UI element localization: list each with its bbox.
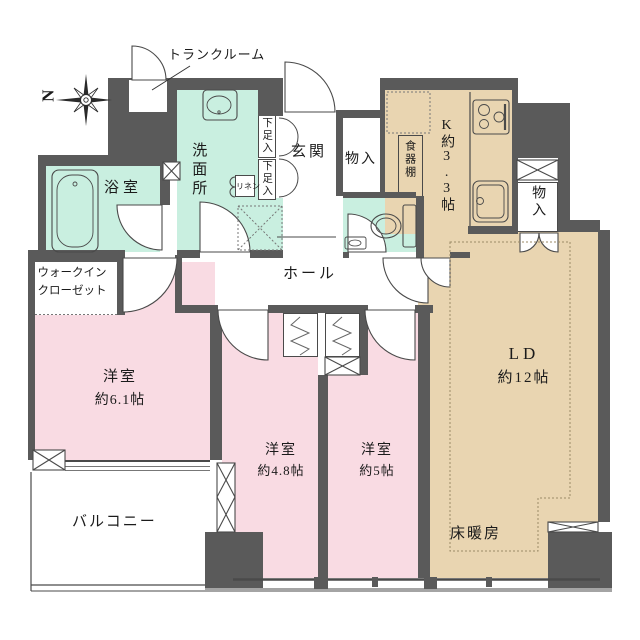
hall-label: ホール <box>283 266 337 283</box>
washroom-label: 洗面所 <box>189 142 206 199</box>
entrance-door <box>285 62 335 112</box>
hanger-pipe-icon <box>333 317 351 355</box>
hanger-pipe-icons <box>291 317 351 355</box>
bedroom-5-label: 洋室約5帖 <box>330 440 424 482</box>
pipe-space-icon <box>325 357 360 375</box>
hanger-pipe-icon <box>291 317 309 355</box>
door-swings <box>117 46 558 360</box>
trunk-room-label: トランクルーム <box>168 48 265 63</box>
compass-icon <box>56 74 112 126</box>
kitchen-sink-icon <box>473 181 508 222</box>
washroom-door <box>200 202 250 252</box>
cupboard-label: 食器棚 <box>403 140 416 179</box>
walk-in-closet-label: ウォークインクローゼット <box>26 264 118 301</box>
bedroom-5-door <box>365 310 415 360</box>
living-dining-label: LD約12帖 <box>458 343 590 389</box>
bedroom-61-label: 洋室約6.1帖 <box>58 366 182 411</box>
bathroom-door <box>117 205 162 250</box>
bathroom-label: 浴室 <box>104 180 142 197</box>
plan-graphics <box>0 0 640 640</box>
washbasin-icon <box>203 90 237 120</box>
trunk-room-door <box>132 46 166 80</box>
bedroom-48-label: 洋室約4.8帖 <box>230 440 332 482</box>
linen-door-upper <box>230 177 235 187</box>
compass-north-label: N <box>38 90 58 102</box>
bedroom-61-door <box>123 258 177 312</box>
floor-heating-outline <box>450 242 570 551</box>
balcony-label: バルコニー <box>72 514 157 531</box>
storage-kitchen-label: 物入 <box>529 185 545 219</box>
shoe-cabinet-lower-door <box>279 159 298 197</box>
floor-plan: トランクルーム 洗面所 浴室 ウォークインクローゼット 玄関 下足入 下足入 リ… <box>0 0 640 640</box>
shoe-cabinet-upper-label: 下足入 <box>260 117 272 155</box>
pipe-space-icon <box>548 522 598 532</box>
stove-icon <box>473 100 509 134</box>
linen-label: リネン <box>236 182 260 191</box>
shoe-cabinet-lower-label: 下足入 <box>260 160 272 198</box>
storage-entrance-label: 物入 <box>345 152 377 168</box>
bedroom-48-door <box>218 310 268 360</box>
pipe-space-icon <box>517 160 558 180</box>
linen-door-lower <box>230 187 235 197</box>
refrigerator-space <box>387 92 430 133</box>
bathtub-icon <box>52 170 98 252</box>
entrance-label: 玄関 <box>291 144 327 161</box>
pipe-space-icon <box>33 450 65 470</box>
kitchen-label: K約3.3帖 <box>438 118 454 212</box>
pipe-space-icon <box>163 162 180 180</box>
floor-heating-label: 床暖房 <box>450 526 501 543</box>
